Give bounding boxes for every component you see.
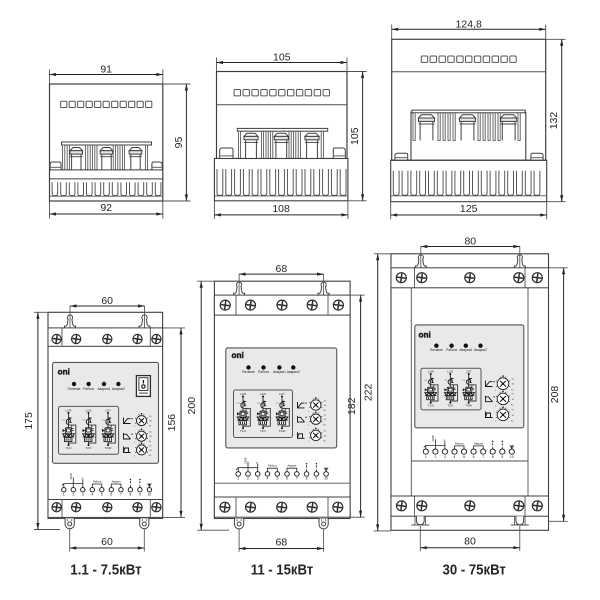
svg-text:oni: oni [419, 331, 431, 340]
svg-text:2: 2 [434, 455, 436, 459]
svg-text:T1/U: T1/U [428, 403, 434, 407]
svg-text:4: 4 [454, 455, 456, 459]
svg-text:3: 3 [257, 477, 259, 481]
svg-text:7: 7 [120, 492, 122, 496]
svg-text:60: 60 [101, 295, 113, 307]
svg-text:N: N [442, 439, 446, 441]
svg-text:Работа: Работа [258, 370, 269, 374]
svg-text:1.1 - 7.5кВт: 1.1 - 7.5кВт [70, 561, 141, 578]
svg-text:Авария2: Авария2 [287, 370, 300, 374]
svg-text:oni: oni [232, 351, 244, 360]
svg-text:1: 1 [237, 477, 239, 481]
svg-text:Авария2: Авария2 [112, 387, 125, 391]
svg-text:T1/U: T1/U [240, 429, 246, 433]
svg-text:124,8: 124,8 [456, 18, 482, 30]
svg-text:6: 6 [286, 477, 288, 481]
svg-text:222: 222 [363, 383, 375, 401]
svg-text:2: 2 [72, 492, 74, 496]
svg-text:Питание: Питание [430, 348, 443, 352]
svg-text:T3/W: T3/W [465, 403, 472, 407]
svg-text:Авария: Авария [287, 464, 296, 468]
svg-text:3: 3 [82, 492, 84, 496]
svg-text:Авария: Авария [474, 441, 483, 445]
svg-text:Работа: Работа [446, 348, 457, 352]
svg-text:1: 1 [63, 492, 65, 496]
svg-text:9: 9 [315, 477, 317, 481]
svg-text:200: 200 [186, 397, 198, 415]
svg-text:92: 92 [100, 202, 112, 214]
svg-text:10: 10 [510, 455, 514, 459]
svg-text:2: 2 [247, 477, 249, 481]
svg-text:68: 68 [276, 537, 288, 549]
svg-text:Питание: Питание [67, 387, 80, 391]
svg-text:3: 3 [444, 455, 446, 459]
svg-text:5: 5 [276, 477, 278, 481]
svg-text:Авария1: Авария1 [459, 348, 472, 352]
svg-text:8: 8 [129, 492, 131, 496]
svg-text:7: 7 [482, 455, 484, 459]
svg-text:L3/T: L3/T [279, 392, 285, 396]
svg-text:5: 5 [463, 455, 465, 459]
svg-text:11 - 15кВт: 11 - 15кВт [251, 561, 314, 578]
svg-text:156: 156 [166, 414, 178, 432]
svg-text:Питание: Питание [242, 370, 255, 374]
svg-text:132: 132 [548, 112, 560, 130]
svg-text:T1/U: T1/U [65, 446, 71, 450]
svg-text:L2/S: L2/S [260, 392, 266, 396]
svg-text:T2/V: T2/V [260, 429, 266, 433]
svg-text:L2/S: L2/S [86, 408, 92, 412]
svg-text:Работа: Работа [93, 480, 102, 484]
svg-text:1: 1 [425, 455, 427, 459]
svg-text:95: 95 [173, 137, 185, 149]
svg-text:Авария: Авария [112, 480, 121, 484]
svg-text:N: N [255, 462, 259, 464]
svg-text:220В: 220В [244, 457, 248, 463]
svg-text:105: 105 [273, 52, 291, 64]
svg-text:N: N [80, 477, 84, 479]
svg-text:10: 10 [324, 477, 328, 481]
svg-text:Работа: Работа [268, 464, 277, 468]
svg-text:6: 6 [110, 492, 112, 496]
svg-text:T3/W: T3/W [279, 429, 286, 433]
svg-text:8: 8 [306, 477, 308, 481]
svg-text:T2/V: T2/V [86, 446, 92, 450]
svg-text:220В: 220В [431, 435, 435, 441]
svg-text:Авария2: Авария2 [474, 348, 487, 352]
svg-text:L1/R: L1/R [240, 392, 246, 396]
svg-text:4: 4 [91, 492, 93, 496]
svg-text:4: 4 [267, 477, 269, 481]
svg-text:Авария1: Авария1 [273, 370, 286, 374]
svg-text:68: 68 [276, 263, 288, 275]
svg-text:60: 60 [101, 536, 113, 548]
svg-text:L1/R: L1/R [66, 408, 72, 412]
svg-text:80: 80 [464, 236, 476, 248]
svg-text:91: 91 [100, 64, 112, 76]
svg-text:9: 9 [501, 455, 503, 459]
svg-text:182: 182 [346, 397, 358, 415]
svg-text:9: 9 [139, 492, 141, 496]
svg-text:7: 7 [296, 477, 298, 481]
svg-text:Авария1: Авария1 [97, 387, 110, 391]
svg-text:108: 108 [272, 203, 290, 215]
svg-text:125: 125 [460, 203, 478, 215]
svg-text:10: 10 [148, 492, 152, 496]
svg-text:105: 105 [349, 127, 361, 145]
svg-text:80: 80 [464, 536, 476, 548]
svg-text:208: 208 [549, 386, 561, 404]
svg-text:30 - 75кВт: 30 - 75кВт [443, 561, 506, 578]
svg-text:T2/V: T2/V [447, 403, 453, 407]
svg-text:6: 6 [473, 455, 475, 459]
svg-text:220В: 220В [69, 473, 73, 479]
svg-text:T3/W: T3/W [105, 446, 112, 450]
svg-text:oni: oni [58, 367, 70, 376]
svg-text:175: 175 [23, 412, 35, 430]
svg-text:5: 5 [101, 492, 103, 496]
svg-text:8: 8 [492, 455, 494, 459]
svg-text:Работа: Работа [83, 387, 94, 391]
svg-text:Работа: Работа [455, 441, 464, 445]
svg-text:L3/T: L3/T [105, 408, 111, 412]
